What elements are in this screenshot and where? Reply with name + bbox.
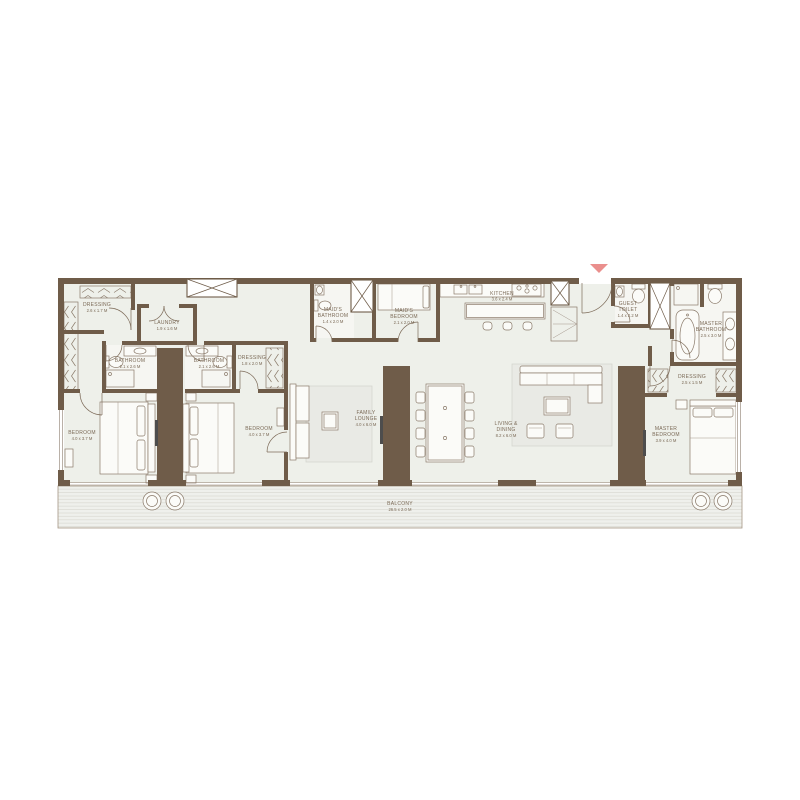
floorplan-svg: DRESSING 2.6 x 1.7 M LAUNDRY 1.9 x 1.6 M…	[0, 0, 800, 800]
lounge-chair	[714, 492, 732, 510]
dining-chair	[465, 410, 474, 421]
label-laundry-dims: 1.9 x 1.6 M	[157, 326, 178, 331]
bed-2-headboard	[183, 404, 189, 472]
bed-2-pillow	[190, 439, 198, 467]
label-dressing-2-dims: 1.8 x 2.0 M	[242, 361, 263, 366]
sofa-chaise	[588, 385, 602, 403]
slab-master	[618, 366, 645, 481]
master-bed-pillow	[714, 408, 733, 417]
nightstand	[186, 475, 196, 483]
dining-chair	[465, 392, 474, 403]
window-right	[736, 402, 742, 472]
label-guest-toilet-dims: 1.4 x 2.2 M	[618, 313, 639, 318]
double-vanity	[723, 312, 737, 360]
toilet-tank	[227, 356, 232, 368]
label-kitchen-dims: 3.6 x 2.4 M	[492, 297, 513, 302]
bar-stool	[483, 322, 492, 330]
wardrobe-master-left	[648, 369, 668, 392]
coffee-table	[544, 397, 570, 415]
kitchen-island	[465, 303, 545, 319]
label-bedroom-1-dims: 4.0 x 3.7 M	[72, 436, 93, 441]
entry-opening	[579, 278, 615, 284]
dining-chair	[416, 428, 425, 439]
nightstand	[186, 393, 196, 401]
label-bathroom-2-dims: 2.1 x 2.6 M	[199, 364, 220, 369]
dresser	[277, 408, 284, 426]
label-bedroom-2-dims: 4.0 x 3.7 M	[249, 432, 270, 437]
bed-2-pillow	[190, 407, 198, 435]
lounge-sofa-seat	[296, 423, 309, 458]
armchair	[527, 424, 544, 438]
maids-bed-pillow	[423, 286, 429, 308]
dining-chair	[416, 410, 425, 421]
dining-chair	[416, 446, 425, 457]
label-bathroom-1-dims: 2.1 x 2.6 M	[120, 364, 141, 369]
toilet-tank	[632, 284, 645, 289]
floorplan-canvas: DRESSING 2.6 x 1.7 M LAUNDRY 1.9 x 1.6 M…	[0, 0, 800, 800]
nightstand	[146, 393, 157, 401]
master-bed-pillow	[693, 408, 712, 417]
tv-master	[643, 430, 646, 456]
label-balcony-dims: 26.5 x 2.0 M	[388, 507, 412, 512]
wardrobe-dressing-2	[266, 348, 283, 388]
armchair	[556, 424, 573, 438]
bar-stool	[503, 322, 512, 330]
slab-family-lounge	[383, 366, 410, 481]
dining-chair	[465, 428, 474, 439]
wardrobe-master-right	[716, 369, 736, 392]
sofa-seat	[520, 373, 602, 385]
wardrobe-left-wall	[64, 302, 78, 392]
window-left	[58, 410, 64, 470]
label-maids-bathroom-dims: 1.4 x 2.0 M	[323, 319, 344, 324]
label-family-lounge-dims: 4.0 x 6.0 M	[356, 422, 377, 427]
bathtub	[676, 310, 699, 360]
dining-chair	[416, 392, 425, 403]
vanity	[124, 346, 156, 356]
label-dressing-master-dims: 2.5 x 1.5 M	[682, 380, 703, 385]
tv-family-lounge	[380, 416, 383, 444]
dresser	[65, 449, 73, 467]
bed-1-pillow	[137, 406, 145, 436]
wardrobe-dressing-nw	[80, 286, 131, 298]
lounge-coffee-table	[322, 412, 338, 430]
bed-1-headboard	[148, 404, 155, 472]
lounge-chair	[692, 492, 710, 510]
label-dressing-nw-dims: 2.6 x 1.7 M	[87, 308, 108, 313]
label-master-bedroom-dims: 3.9 x 4.0 M	[656, 438, 677, 443]
master-bed-headboard	[690, 400, 736, 406]
label-master-bathroom-dims: 2.5 x 3.0 M	[701, 333, 722, 338]
wall-top	[58, 278, 742, 284]
toilet-tank	[314, 300, 318, 311]
dining-chair	[465, 446, 474, 457]
nightstand	[676, 400, 687, 409]
sofa-back	[520, 366, 602, 373]
lounge-sofa-seat	[296, 386, 309, 421]
slab-bedrooms	[157, 348, 183, 481]
dining-table	[426, 384, 464, 462]
maids-bed	[378, 284, 430, 310]
toilet-icon	[709, 289, 722, 304]
lounge-sofa-back	[290, 384, 296, 460]
lounge-chair	[143, 492, 161, 510]
label-living-dining-dims: 8.2 x 6.0 M	[496, 433, 517, 438]
tv-bedroom-1	[155, 420, 158, 446]
lounge-chair	[166, 492, 184, 510]
bar-stool	[523, 322, 532, 330]
entry-arrow-icon	[590, 264, 608, 273]
maids-bedroom-furniture	[378, 284, 430, 310]
bed-1-pillow	[137, 440, 145, 470]
label-maids-bedroom-dims: 2.1 x 2.0 M	[394, 320, 415, 325]
